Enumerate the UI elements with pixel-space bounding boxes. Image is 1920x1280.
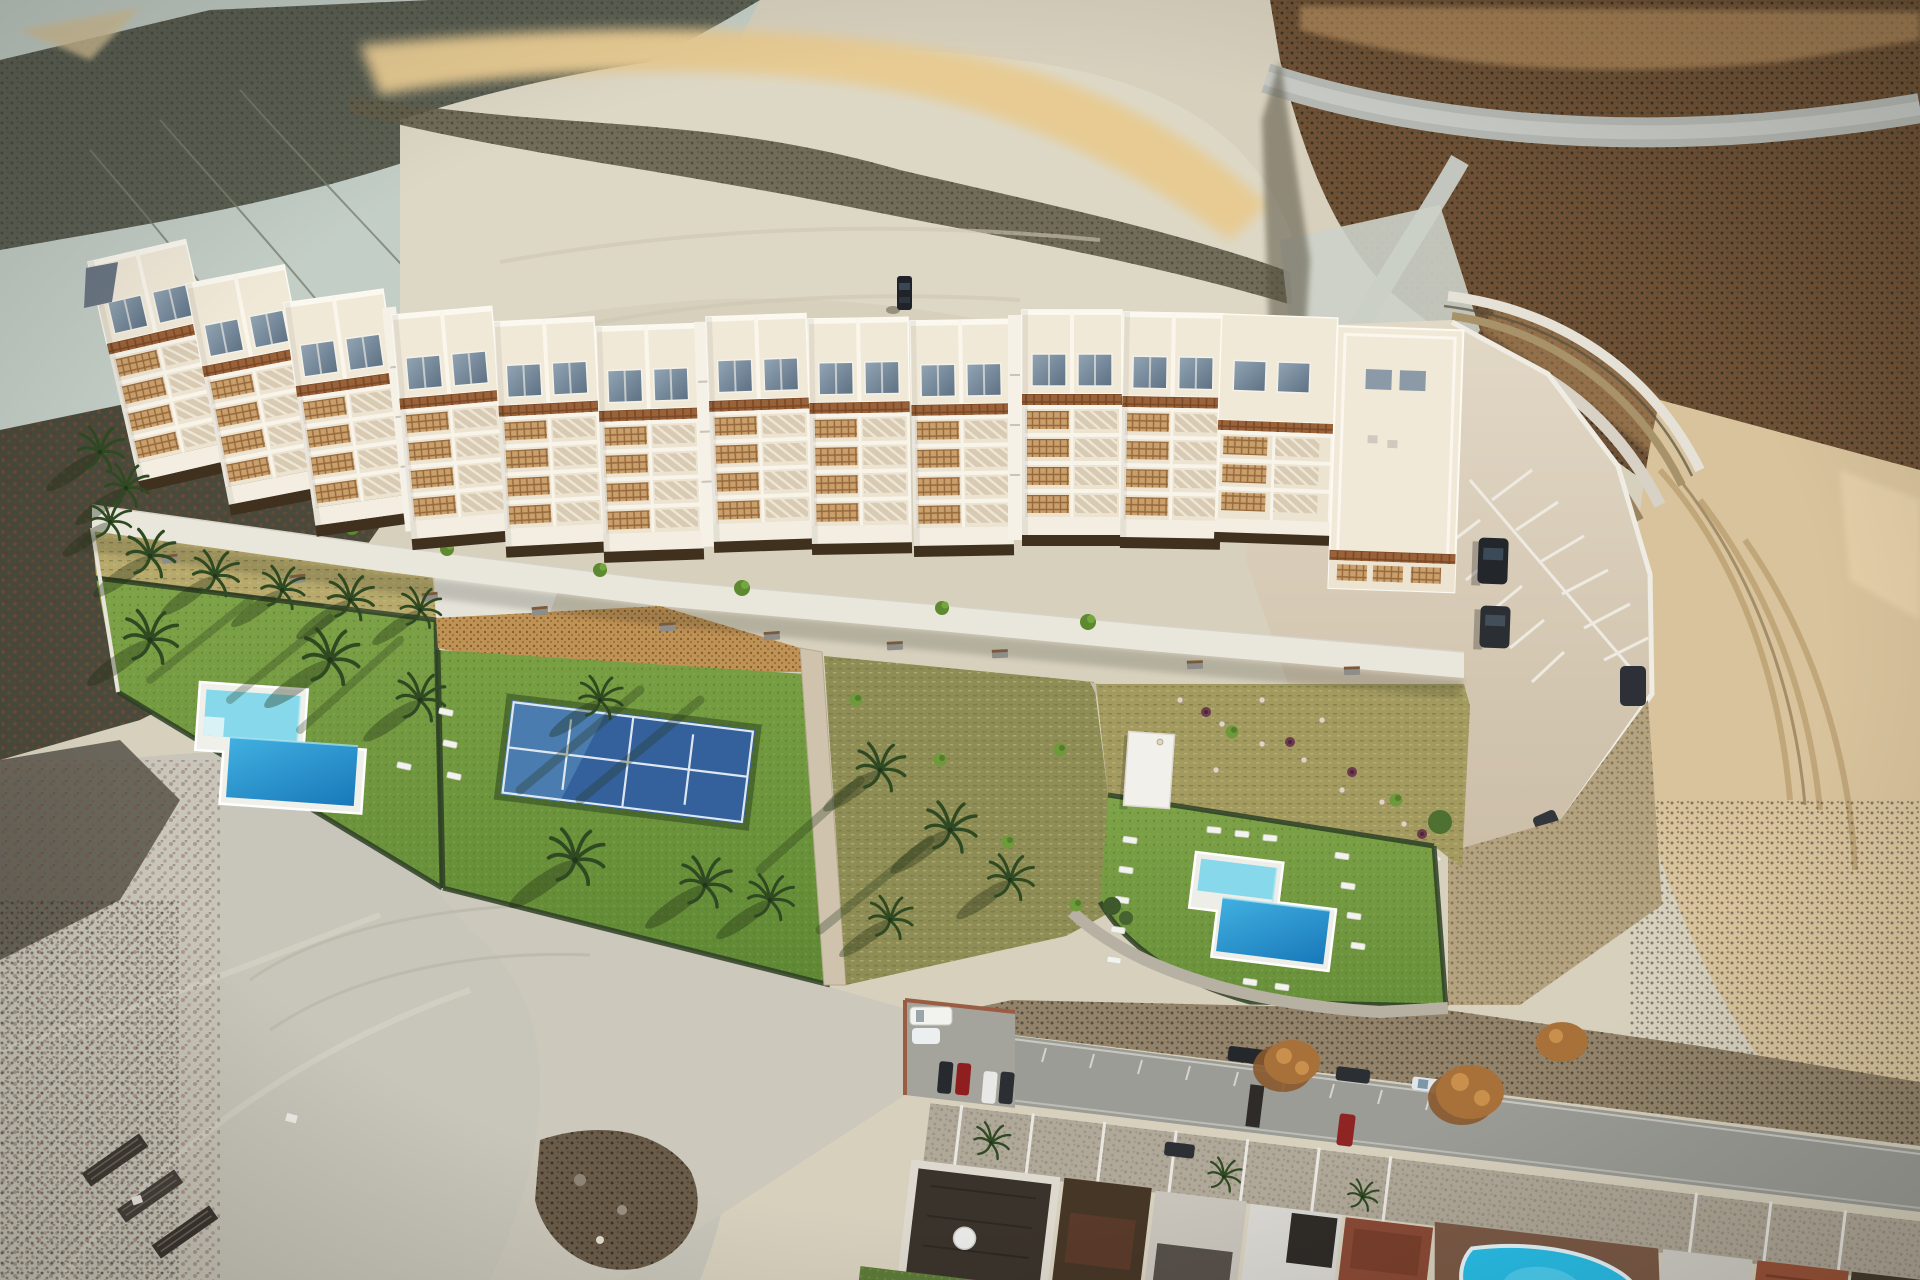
aerial-photo [0, 0, 1920, 1280]
aerial-photo-stage [0, 0, 1920, 1280]
vignette [0, 0, 1920, 1280]
